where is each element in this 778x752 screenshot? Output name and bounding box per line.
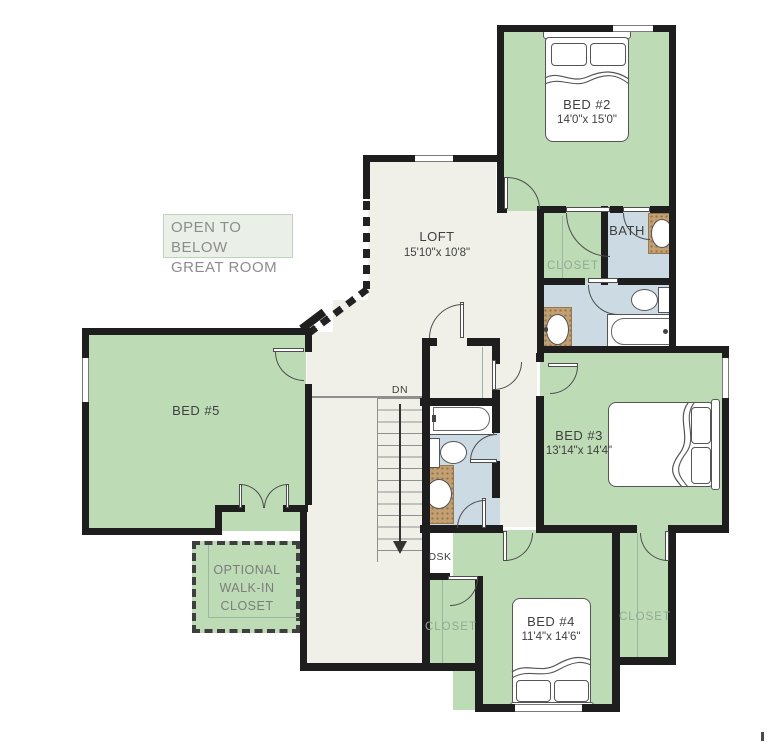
bath-toilet-bowl <box>631 289 658 311</box>
wall <box>82 528 222 535</box>
wall <box>363 155 370 199</box>
wall <box>537 346 676 353</box>
wall <box>422 338 437 346</box>
wall <box>453 155 497 162</box>
wall <box>82 402 89 535</box>
artifact-mark <box>761 732 764 741</box>
wall <box>305 335 312 352</box>
bed3-closet-label: CLOSET <box>585 611 705 624</box>
bed3-label: BED #3 <box>519 429 639 444</box>
open-to-below-line2: GREAT ROOM <box>171 258 292 278</box>
wall <box>82 328 312 335</box>
wall <box>610 206 623 213</box>
wall <box>544 278 585 285</box>
bed5-label: BED #5 <box>136 404 256 419</box>
wall <box>475 576 483 712</box>
bath-label: BATH <box>567 224 687 239</box>
bed4-pillow-left <box>516 680 551 702</box>
bed4-closet-label: CLOSET <box>391 621 511 634</box>
wall <box>650 206 676 213</box>
hallway-upper <box>495 211 539 353</box>
bed2-label: BED #2 <box>527 98 647 113</box>
middle-bath-tub-basin <box>433 407 490 431</box>
bed3-dims: 13'14"x 14'4" <box>519 445 639 458</box>
linen-closet-rod <box>482 347 483 398</box>
lower-bath-sink <box>546 314 569 345</box>
wall <box>305 384 312 505</box>
optional-closet-label: OPTIONAL WALK-IN CLOSET <box>187 561 307 615</box>
bath-tub-basin <box>611 318 670 345</box>
optional-closet-line1: OPTIONAL <box>187 561 307 579</box>
optional-closet-line2: WALK-IN <box>187 579 307 597</box>
bath-tub-faucet <box>663 329 668 334</box>
bed3-headboard <box>711 399 720 490</box>
optional-closet-line3: CLOSET <box>187 597 307 615</box>
bed2-pillow-left <box>551 43 587 66</box>
wall <box>215 505 222 535</box>
loft-window <box>415 155 453 162</box>
bed2-blanket-fold <box>545 68 629 98</box>
wall <box>618 278 676 285</box>
lower-bath-sink-faucet <box>544 327 548 332</box>
wall <box>475 704 515 712</box>
open-to-below-note: OPEN TO BELOW GREAT ROOM <box>163 214 293 258</box>
bed5-window <box>82 358 89 402</box>
wall <box>492 461 500 498</box>
wall <box>668 533 676 665</box>
wall <box>537 206 544 353</box>
middle-bath-tub-faucet <box>432 415 436 422</box>
bed3-closet-rod <box>637 533 638 657</box>
floor-plan: OPEN TO BELOW GREAT ROOM LOFT 15'10"x 10… <box>0 0 778 752</box>
wall <box>497 25 613 32</box>
desk-label: DSK <box>420 551 460 563</box>
bath-door-leaf <box>623 207 650 212</box>
bed4-pillow-right <box>554 680 589 702</box>
wall <box>422 573 450 580</box>
bath-inner-door-leaf <box>588 278 618 283</box>
wall <box>722 398 729 533</box>
bed2-pillow-right <box>590 43 626 66</box>
wall <box>612 657 676 665</box>
stairs-down-arrow-head <box>393 541 407 554</box>
middle-bath-toilet-bowl <box>440 441 467 464</box>
bed4-window <box>515 704 582 712</box>
bed3-blanket-fold <box>662 403 696 487</box>
wall <box>497 25 504 213</box>
wall <box>722 346 729 358</box>
stairs-down-label: DN <box>380 384 420 396</box>
loft-label: LOFT <box>377 230 497 245</box>
wall <box>363 155 415 162</box>
open-to-below-line1: OPEN TO BELOW <box>171 218 292 258</box>
wall <box>82 328 89 358</box>
wall <box>668 525 729 533</box>
upper-closet-label: CLOSET <box>513 260 633 273</box>
bed2-window <box>613 25 653 32</box>
upper-closet-door-leaf <box>566 207 610 212</box>
bed4-blanket-fold <box>512 648 591 682</box>
stairs-down-arrow-shaft <box>399 404 401 542</box>
wall <box>669 25 676 213</box>
bed3-window <box>722 358 729 398</box>
wall <box>536 353 544 362</box>
wall <box>492 406 500 433</box>
wall <box>422 338 430 663</box>
wall <box>536 396 544 533</box>
bed2-dims: 14'0"x 15'0" <box>527 114 647 127</box>
loft-dims: 15'10"x 10'8" <box>377 247 497 260</box>
wall <box>536 525 637 533</box>
wall <box>300 663 483 671</box>
loft-railing <box>363 201 370 289</box>
wall <box>420 398 500 406</box>
